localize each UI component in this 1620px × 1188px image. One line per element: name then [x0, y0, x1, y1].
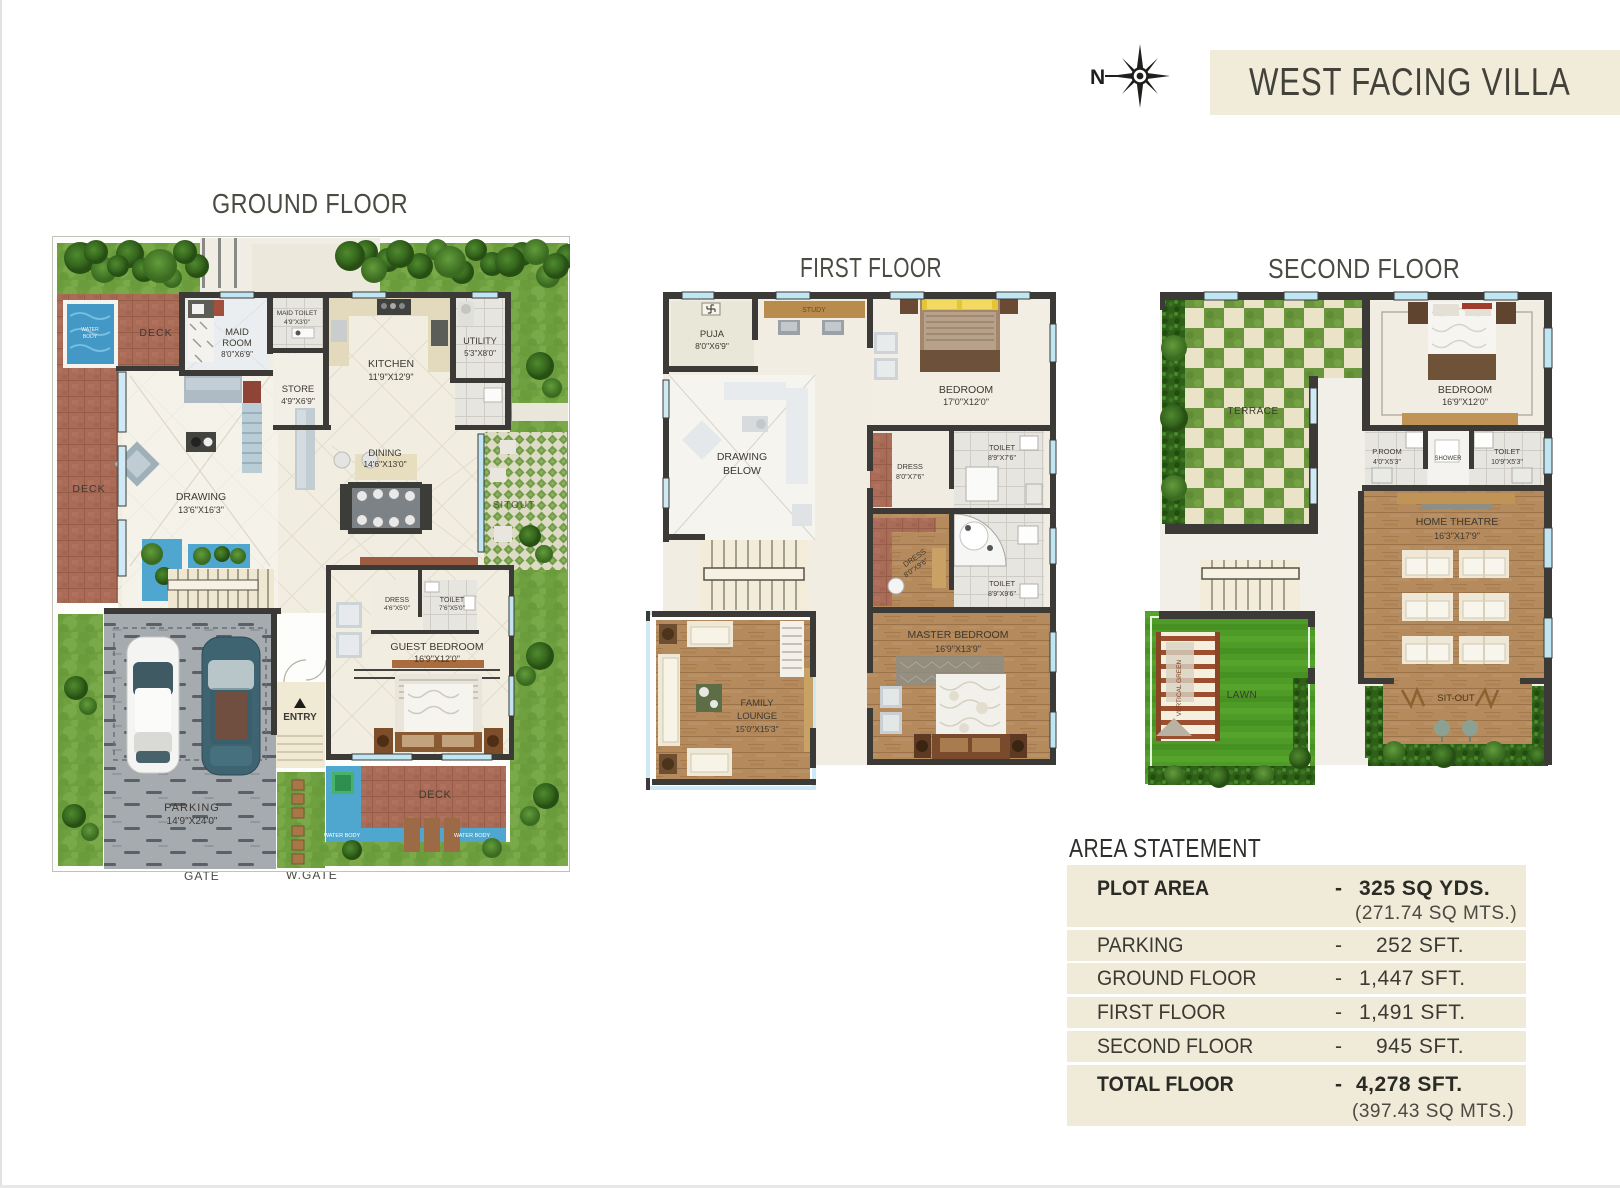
svg-text:GUEST BEDROOM: GUEST BEDROOM	[390, 641, 483, 653]
svg-text:MASTER BEDROOM: MASTER BEDROOM	[908, 629, 1009, 641]
svg-text:FAMILY: FAMILY	[740, 698, 774, 709]
svg-text:4'9"X3'0": 4'9"X3'0"	[284, 319, 311, 326]
svg-text:SITOUT: SITOUT	[493, 500, 535, 511]
svg-text:PARKING: PARKING	[164, 802, 220, 814]
svg-text:BEDROOM: BEDROOM	[939, 384, 993, 396]
svg-text:8'9"X7'6": 8'9"X7'6"	[988, 455, 1016, 462]
svg-text:PUJA: PUJA	[700, 329, 725, 340]
svg-text:16'9"X12'0": 16'9"X12'0"	[414, 654, 460, 664]
svg-text:HOME THEATRE: HOME THEATRE	[1416, 516, 1498, 528]
svg-text:DECK: DECK	[419, 789, 452, 801]
svg-text:WATER BODY: WATER BODY	[454, 833, 491, 839]
svg-text:15'0"X15'3": 15'0"X15'3"	[735, 724, 778, 734]
svg-text:WATER BODY: WATER BODY	[324, 833, 361, 839]
svg-text:DRAWING: DRAWING	[717, 451, 767, 463]
svg-text:TERRACE: TERRACE	[1227, 406, 1278, 417]
svg-text:DRAWING: DRAWING	[176, 491, 226, 503]
svg-text:7'6"X5'0": 7'6"X5'0"	[439, 605, 466, 612]
svg-text:4'6"X5'0": 4'6"X5'0"	[384, 605, 411, 612]
svg-text:STORE: STORE	[282, 384, 315, 395]
svg-text:16'3"X17'9": 16'3"X17'9"	[1434, 531, 1480, 541]
svg-text:16'9"X13'9": 16'9"X13'9"	[935, 644, 981, 654]
svg-text:DRESS: DRESS	[385, 597, 409, 604]
svg-text:8'0"X6'9": 8'0"X6'9"	[695, 341, 729, 351]
svg-text:SHOWER: SHOWER	[1435, 456, 1463, 462]
svg-text:DECK: DECK	[72, 483, 105, 495]
svg-text:WATER: WATER	[81, 327, 99, 333]
svg-text:LAWN: LAWN	[1227, 690, 1258, 701]
svg-text:STUDY: STUDY	[802, 307, 826, 314]
svg-text:BELOW: BELOW	[723, 465, 761, 477]
svg-text:16'9"X12'0": 16'9"X12'0"	[1442, 397, 1488, 407]
svg-text:10'9"X5'3": 10'9"X5'3"	[1491, 459, 1523, 466]
svg-text:14'6"X13'0": 14'6"X13'0"	[363, 459, 406, 469]
svg-text:8'9"X9'6": 8'9"X9'6"	[988, 591, 1016, 598]
svg-text:TOILET: TOILET	[1494, 447, 1521, 456]
svg-text:BODY: BODY	[83, 334, 98, 340]
svg-text:11'9"X12'9": 11'9"X12'9"	[368, 372, 413, 382]
svg-text:TOILET: TOILET	[989, 579, 1016, 588]
svg-text:ENTRY: ENTRY	[283, 712, 317, 723]
svg-text:SIT-OUT: SIT-OUT	[1437, 693, 1475, 704]
svg-text:P.ROOM: P.ROOM	[1372, 447, 1401, 456]
svg-text:4'0"X5'3": 4'0"X5'3"	[1373, 459, 1401, 466]
svg-text:8'0"X7'6": 8'0"X7'6"	[896, 474, 924, 481]
svg-text:DECK: DECK	[139, 327, 172, 339]
svg-text:14'9"X24'0": 14'9"X24'0"	[167, 816, 218, 827]
svg-text:MAID: MAID	[225, 327, 249, 338]
svg-text:TOILET: TOILET	[440, 597, 465, 604]
svg-text:KITCHEN: KITCHEN	[368, 358, 414, 370]
svg-text:MAID TOILET: MAID TOILET	[277, 310, 318, 317]
svg-text:13'6"X16'3": 13'6"X16'3"	[178, 505, 224, 515]
svg-text:VERTICAL GREEN: VERTICAL GREEN	[1176, 660, 1183, 717]
svg-text:8'0"X6'9": 8'0"X6'9"	[221, 350, 253, 359]
svg-text:TOILET: TOILET	[989, 443, 1016, 452]
svg-text:5'3"X8'0": 5'3"X8'0"	[464, 349, 496, 358]
svg-text:N: N	[1090, 66, 1105, 89]
svg-text:17'0"X12'0": 17'0"X12'0"	[943, 397, 989, 407]
svg-text:4'9"X6'9": 4'9"X6'9"	[281, 396, 315, 406]
svg-text:DRESS: DRESS	[897, 462, 923, 471]
svg-text:UTILITY: UTILITY	[463, 336, 497, 346]
svg-text:DINING: DINING	[368, 448, 401, 459]
svg-text:BEDROOM: BEDROOM	[1438, 384, 1492, 396]
svg-text:ROOM: ROOM	[222, 338, 252, 349]
svg-text:LOUNGE: LOUNGE	[737, 711, 777, 722]
